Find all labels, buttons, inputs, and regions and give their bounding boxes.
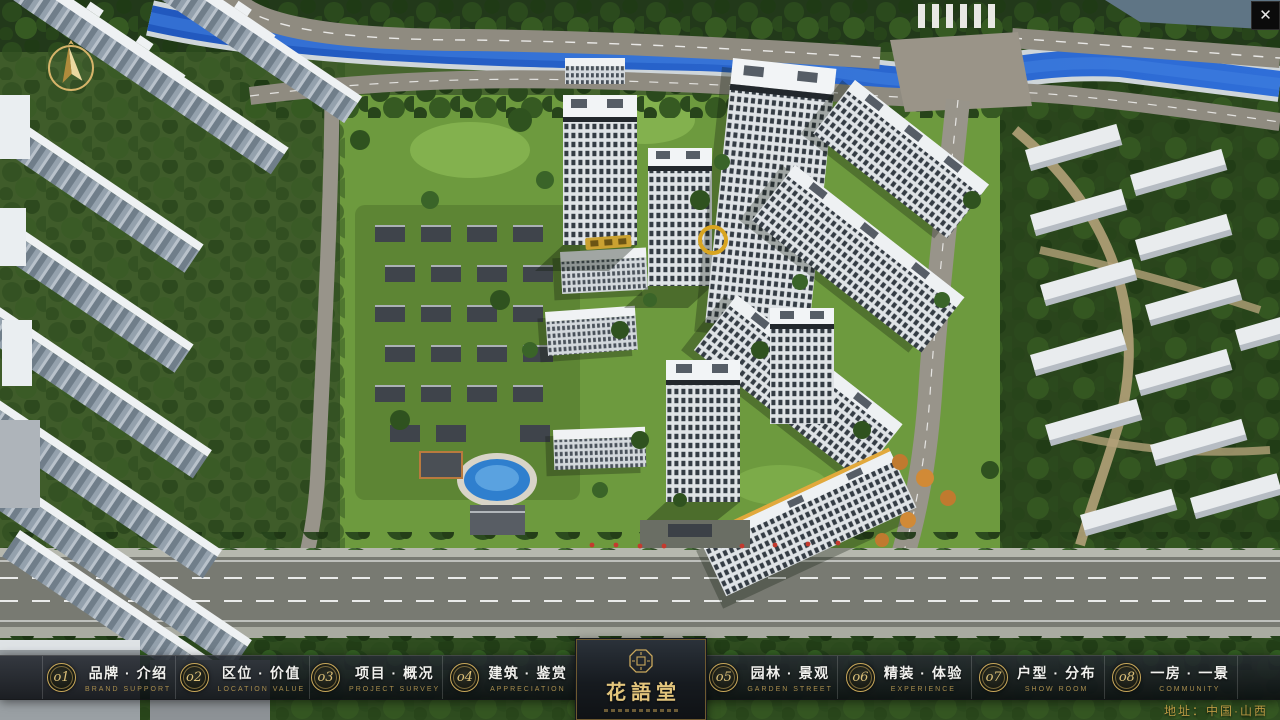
brand-panel[interactable]: 花語堂: [576, 639, 706, 720]
nav-label-zh: 精装 · 体验: [884, 663, 963, 683]
map-viewport[interactable]: [0, 0, 1280, 720]
nav-label-zh: 品牌 · 介绍: [89, 663, 168, 683]
close-icon: ✕: [1259, 8, 1272, 23]
nav-item-floorplan[interactable]: o7 户型 · 分布SHOW ROOM: [972, 656, 1105, 699]
compass[interactable]: [40, 36, 102, 98]
nav-label-en: BRAND SUPPORT: [85, 686, 171, 693]
nav-badge-icon: o4: [450, 663, 479, 692]
brand-tagline-rule: [604, 709, 678, 712]
nav-label-en: APPRECIATION: [490, 686, 566, 693]
nav-label-zh: 一房 · 一景: [1150, 663, 1229, 683]
app-window: ✕ o1 品牌 · 介绍BRAND SUPPORT o2 区位 · 价值LOCA…: [0, 0, 1280, 720]
nav-badge-icon: o5: [709, 663, 738, 692]
close-button[interactable]: ✕: [1251, 1, 1280, 30]
nav-label-en: SHOW ROOM: [1025, 686, 1089, 693]
nav-item-views[interactable]: o8 一房 · 一景COMMUNITY: [1105, 656, 1238, 699]
project-address: 地址：中国·山西: [1164, 702, 1268, 719]
compass-north-tick: [68, 40, 74, 45]
nav-label-zh: 园林 · 景观: [751, 663, 830, 683]
nav-badge-icon: o7: [979, 663, 1008, 692]
nav-label-en: EXPERIENCE: [891, 686, 956, 693]
nav-badge-icon: o1: [47, 663, 76, 692]
community-map-canvas[interactable]: [0, 0, 1280, 720]
nav-item-architecture[interactable]: o4 建筑 · 鉴赏APPRECIATION: [443, 656, 576, 699]
nav-badge-icon: o3: [311, 663, 340, 692]
nav-badge-icon: o6: [846, 663, 875, 692]
nav-label-en: PROJECT SURVEY: [349, 686, 440, 693]
nav-label-en: GARDEN STREET: [747, 686, 833, 693]
nav-item-garden[interactable]: o5 园林 · 景观GARDEN STREET: [705, 656, 838, 699]
nav-label-zh: 项目 · 概况: [355, 663, 434, 683]
nav-label-zh: 建筑 · 鉴赏: [488, 663, 567, 683]
nav-label-en: LOCATION VALUE: [218, 686, 306, 693]
nav-label-zh: 区位 · 价值: [222, 663, 301, 683]
nav-item-brand[interactable]: o1 品牌 · 介绍BRAND SUPPORT: [43, 656, 176, 699]
nav-badge-icon: o8: [1112, 663, 1141, 692]
nav-badge-icon: o2: [180, 663, 209, 692]
nav-item-interior[interactable]: o6 精装 · 体验EXPERIENCE: [838, 656, 971, 699]
brand-seal-icon: [628, 648, 654, 674]
nav-label-zh: 户型 · 分布: [1017, 663, 1096, 683]
nav-item-location[interactable]: o2 区位 · 价值LOCATION VALUE: [176, 656, 309, 699]
nav-item-project[interactable]: o3 项目 · 概况PROJECT SURVEY: [310, 656, 443, 699]
brand-title: 花語堂: [601, 676, 681, 705]
nav-label-en: COMMUNITY: [1159, 686, 1220, 693]
